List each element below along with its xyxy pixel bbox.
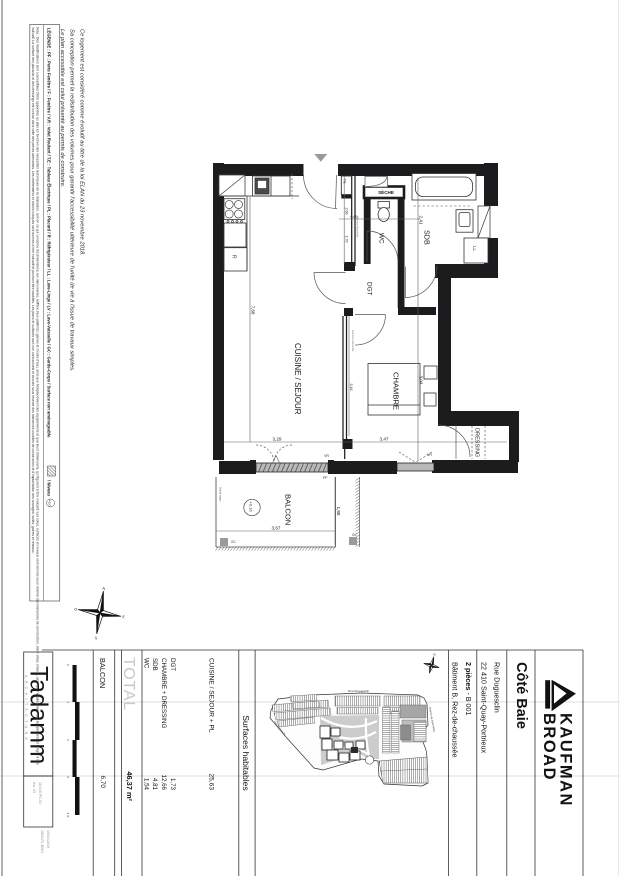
svg-text:6,70: 6,70	[99, 776, 106, 789]
svg-text:LÉGENDE : PF : Porte Fenêtre: LÉGENDE : PF : Porte Fenêtre / F : Fenêt…	[47, 28, 52, 438]
svg-text:VR: VR	[427, 453, 432, 457]
svg-text:TE: TE	[343, 179, 348, 184]
svg-text:3,04: 3,04	[419, 376, 424, 385]
svg-text:VR: VR	[324, 454, 329, 458]
svg-text:1803-PL-B001: 1803-PL-B001	[40, 830, 44, 853]
svg-text:+0,16: +0,16	[249, 502, 254, 513]
svg-text:BALCON: BALCON	[98, 658, 107, 688]
svg-text:Garde-corps: Garde-corps	[219, 487, 223, 502]
svg-text:/ Niveau: / Niveau	[47, 480, 52, 497]
svg-text:DGT: DGT	[366, 282, 373, 296]
svg-text:Surfaces habitables: Surfaces habitables	[241, 715, 251, 790]
svg-text:GC: GC	[231, 540, 236, 544]
svg-text:LL: LL	[472, 246, 477, 252]
svg-text:Bâtiment B, Rez-de-chaussée: Bâtiment B, Rez-de-chaussée	[451, 662, 460, 757]
svg-text:Rue Duguesclin: Rue Duguesclin	[493, 662, 502, 713]
svg-text:25,63: 25,63	[208, 773, 215, 790]
svg-text:Ce logement est considéré comm: Ce logement est considéré comme évolutif…	[79, 29, 85, 256]
svg-text:18.046 PC-04: 18.046 PC-04	[38, 782, 42, 804]
svg-text:22 410 Saint-Quay-Portrieux: 22 410 Saint-Quay-Portrieux	[480, 662, 489, 753]
svg-text:Sa conception permet la redist: Sa conception permet la redistribution d…	[69, 29, 75, 372]
svg-text:CHAMBRE: CHAMBRE	[392, 372, 401, 410]
svg-text:Rue Duguesclin: Rue Duguesclin	[348, 689, 370, 693]
svg-text:3,47: 3,47	[380, 437, 389, 442]
svg-text:19/04/2019: 19/04/2019	[46, 830, 50, 848]
svg-text:SDB: SDB	[423, 230, 432, 245]
svg-text:4,81: 4,81	[151, 778, 158, 791]
svg-text:Nota : Des modifications sont: Nota : Des modifications sont susceptibl…	[36, 27, 40, 765]
svg-text:PF: PF	[323, 476, 328, 480]
svg-text:4 m: 4 m	[66, 813, 70, 818]
svg-text:R: R	[231, 255, 237, 259]
svg-text:1,70: 1,70	[345, 236, 349, 243]
svg-text:2,41: 2,41	[419, 216, 424, 225]
svg-text:46,37 m²: 46,37 m²	[125, 771, 134, 801]
svg-text:CUISINE / SEJOUR: CUISINE / SEJOUR	[293, 343, 302, 415]
svg-text:Cloison Amovible: Cloison Amovible	[351, 330, 355, 352]
svg-text:3,67: 3,67	[272, 526, 281, 531]
svg-text:1,54: 1,54	[143, 778, 150, 791]
svg-text:0,60: 0,60	[351, 215, 358, 219]
svg-text:WC: WC	[378, 233, 385, 244]
svg-text:1,73: 1,73	[169, 778, 176, 791]
svg-text:BALCON: BALCON	[284, 494, 293, 525]
svg-text:Le plan accessible est celui p: Le plan accessible est celui présenté au…	[59, 29, 65, 188]
svg-text:ARCHITECTURE: ARCHITECTURE	[24, 675, 28, 743]
svg-text:+0,0: +0,0	[48, 500, 52, 507]
svg-text:CUISINE / SEJOUR + PL: CUISINE / SEJOUR + PL	[208, 658, 215, 733]
svg-text:TOTAL: TOTAL	[120, 657, 137, 711]
svg-text:1,88: 1,88	[336, 507, 341, 516]
svg-text:SÈCHE: SÈCHE	[378, 188, 394, 195]
svg-text:12,66: 12,66	[160, 775, 167, 791]
svg-text:DRESSING: DRESSING	[474, 428, 480, 457]
svg-text:3,29: 3,29	[273, 437, 282, 442]
svg-text:DGT: DGT	[169, 658, 176, 671]
svg-text:3,16: 3,16	[349, 384, 353, 391]
svg-text:BROAD: BROAD	[540, 713, 558, 781]
svg-text:7,68: 7,68	[251, 306, 256, 315]
svg-text:KAUFMAN: KAUFMAN	[557, 713, 575, 807]
svg-text:Ind. 03: Ind. 03	[32, 782, 36, 793]
svg-text:SDB: SDB	[151, 658, 158, 671]
svg-text:Côté Baie: Côté Baie	[513, 662, 529, 729]
svg-text:indicatif. La surface des plac: indicatif. La surface des placards et de…	[31, 27, 35, 554]
svg-text:WC: WC	[143, 658, 150, 669]
svg-text:2,60: 2,60	[345, 208, 349, 215]
svg-text:CHAMBRE + DRESSING: CHAMBRE + DRESSING	[160, 658, 167, 728]
svg-text:GC: GC	[352, 533, 357, 537]
svg-text:2 pièces - B 001: 2 pièces - B 001	[464, 662, 473, 716]
